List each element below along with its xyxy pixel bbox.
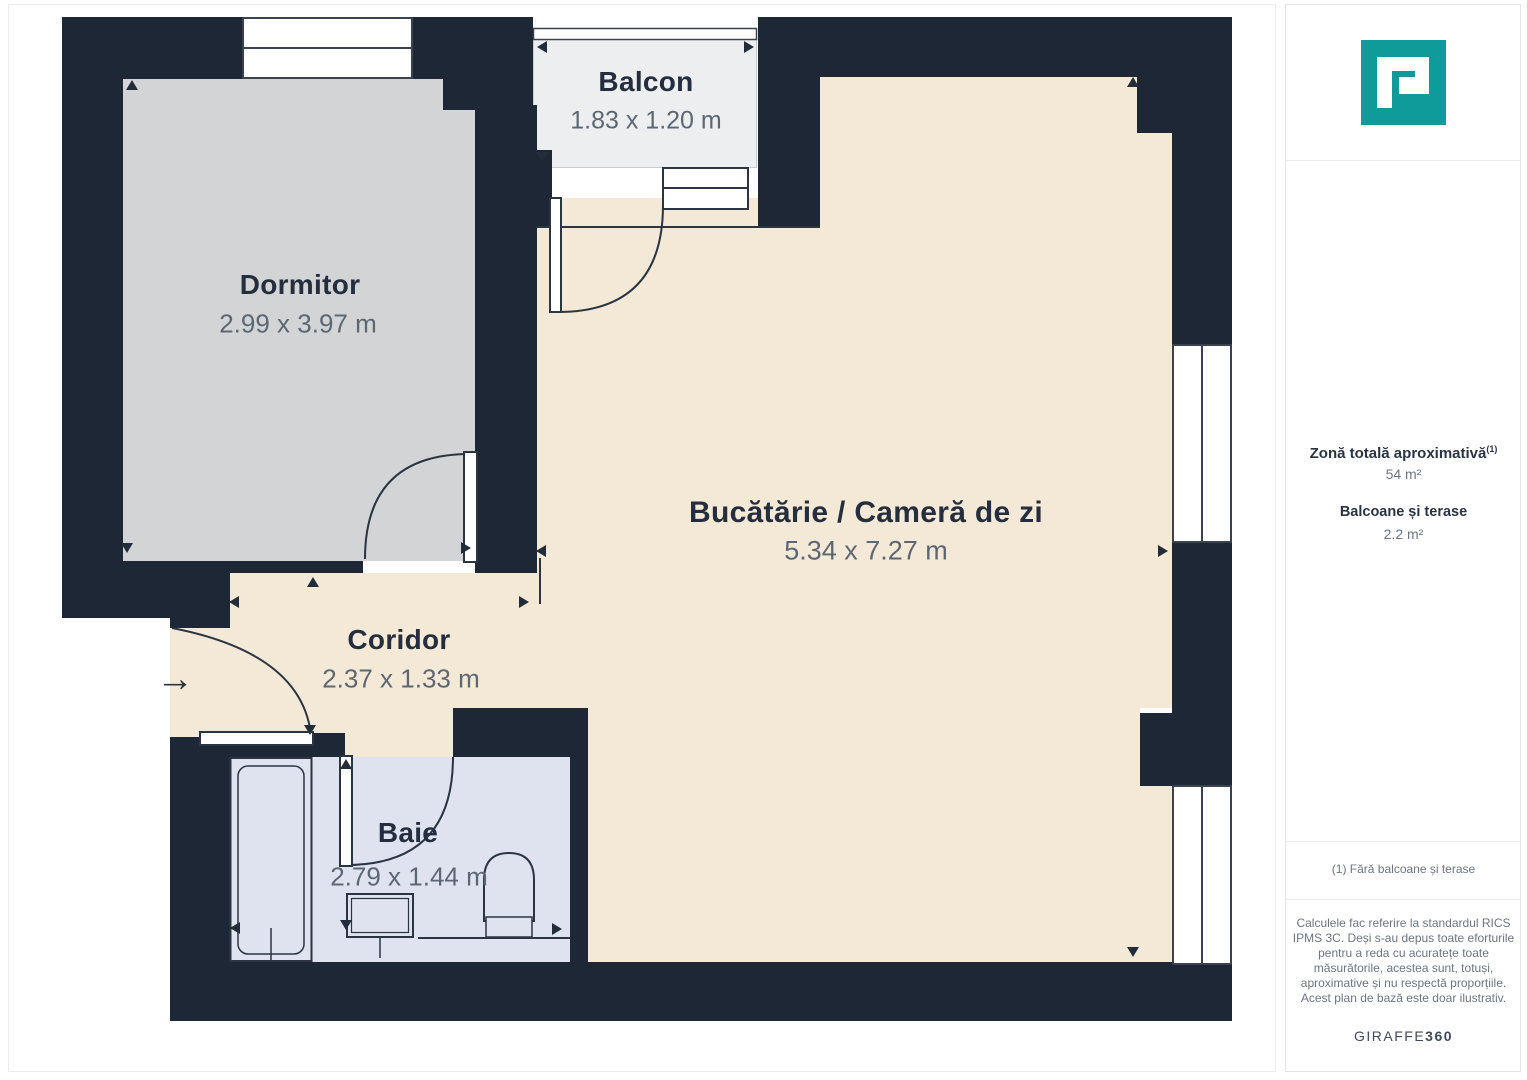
wall-segment <box>170 962 1232 1021</box>
room-dims-bucatarie: 5.34 x 7.27 m <box>784 536 948 567</box>
brand-name-text: GIRAFFE <box>1354 1028 1425 1044</box>
dimension-arrow-up-icon <box>126 80 138 90</box>
floorplan-page: → Dormitor 2.99 x 3.97 m Balcon 1.83 x 1… <box>0 0 1527 1080</box>
wall-segment <box>62 561 230 618</box>
room-floor-bucatarie <box>553 198 758 227</box>
room-label-coridor: Coridor <box>347 624 450 656</box>
brand-wordmark: GIRAFFE360 <box>1285 1028 1522 1044</box>
dimension-arrow-left-icon <box>536 545 546 557</box>
wall-segment <box>170 618 230 628</box>
dimension-arrow-left-icon <box>230 922 240 934</box>
room-floor-dormitor <box>443 110 475 561</box>
dimension-arrow-down-icon <box>1127 947 1139 957</box>
dimension-arrow-down-icon <box>536 152 548 162</box>
sidebar-divider <box>1286 160 1521 161</box>
sidebar-divider <box>1286 841 1521 842</box>
brand-suffix-text: 360 <box>1425 1028 1453 1044</box>
dimension-arrow-right-icon <box>744 41 754 53</box>
footnote: (1) Fără balcoane și terase <box>1285 862 1522 876</box>
dimension-arrow-right-icon <box>552 923 562 935</box>
room-floor-bucatarie <box>588 786 1173 962</box>
brand-logo-icon <box>1361 40 1446 125</box>
sidebar-divider <box>1286 899 1521 900</box>
room-floor-bucatarie <box>820 77 1137 133</box>
dimension-arrow-left-icon <box>229 596 239 608</box>
dimension-arrow-down-icon <box>340 920 352 930</box>
wall-segment <box>453 708 588 757</box>
total-area-note-ref: (1) <box>1486 444 1497 454</box>
dimension-arrow-left-icon <box>537 41 547 53</box>
wall-segment <box>1140 713 1232 786</box>
wall-segment <box>570 757 588 962</box>
wall-segment <box>230 733 345 757</box>
room-dims-balcon: 1.83 x 1.20 m <box>570 107 721 136</box>
balcony-area-label: Balcoane și terase <box>1285 504 1522 520</box>
room-floor-bucatarie <box>537 227 1172 708</box>
total-area-label: Zonă totală aproximativă(1) <box>1285 444 1522 462</box>
dimension-arrow-up-icon <box>340 759 352 769</box>
wall-segment <box>758 77 820 227</box>
room-label-bucatarie: Bucătărie / Cameră de zi <box>689 496 1043 530</box>
room-floor-coridor <box>345 733 455 757</box>
dimension-arrow-right-icon <box>461 542 471 554</box>
room-floor-balcon <box>533 37 757 168</box>
entrance-arrow-icon: → <box>156 658 194 701</box>
total-area-value: 54 m² <box>1285 466 1522 482</box>
room-floor-coridor <box>230 708 455 733</box>
wall-segment <box>1172 542 1232 713</box>
room-floor-baie <box>230 757 570 962</box>
room-floor-bucatarie <box>820 133 1172 227</box>
room-label-balcon: Balcon <box>598 66 693 98</box>
total-area-label-text: Zonă totală aproximativă <box>1310 445 1487 462</box>
wall-segment <box>62 17 533 79</box>
room-label-baie: Baie <box>378 817 438 849</box>
balcony-area-value: 2.2 m² <box>1285 526 1522 542</box>
room-label-dormitor: Dormitor <box>240 269 361 301</box>
wall-segment <box>503 17 533 150</box>
dimension-arrow-right-icon <box>1158 545 1168 557</box>
wall-segment <box>230 561 363 573</box>
dimension-arrow-up-icon <box>1127 77 1139 87</box>
wall-segment <box>1172 77 1232 345</box>
wall-segment <box>758 17 1232 77</box>
wall-segment <box>1137 77 1172 133</box>
wall-segment <box>62 17 123 618</box>
room-dims-coridor: 2.37 x 1.33 m <box>322 664 480 695</box>
door-swing-arrowhead-icon <box>304 725 316 735</box>
dimension-arrow-up-icon <box>307 577 319 587</box>
room-dims-dormitor: 2.99 x 3.97 m <box>219 309 377 340</box>
disclaimer-text: Calculele fac referire la standardul RIC… <box>1291 916 1516 1006</box>
room-floor-bucatarie <box>588 708 1140 786</box>
room-dims-baie: 2.79 x 1.44 m <box>330 862 488 893</box>
dimension-arrow-right-icon <box>519 596 529 608</box>
dimension-arrow-down-icon <box>121 543 133 553</box>
